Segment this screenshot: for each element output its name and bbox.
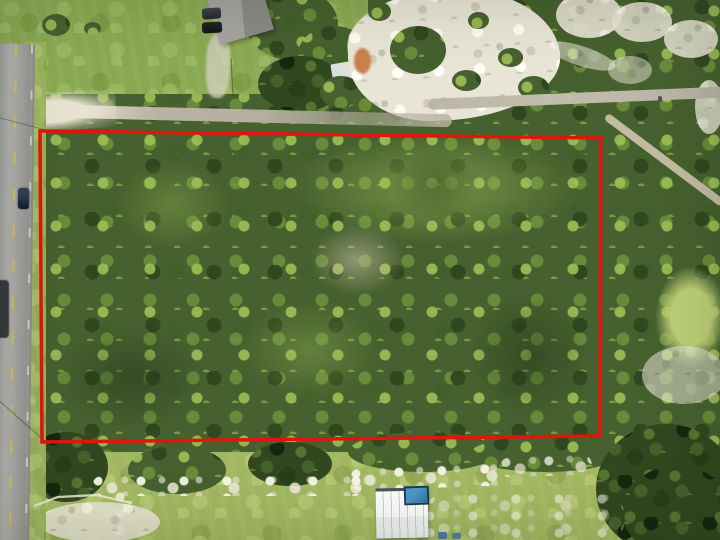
power-line bbox=[0, 117, 46, 130]
overlay-lines bbox=[0, 0, 720, 540]
parcel-boundary bbox=[40, 131, 601, 442]
culvert-line bbox=[34, 495, 132, 506]
aerial-photo bbox=[0, 0, 720, 540]
utility-pole bbox=[231, 58, 233, 96]
